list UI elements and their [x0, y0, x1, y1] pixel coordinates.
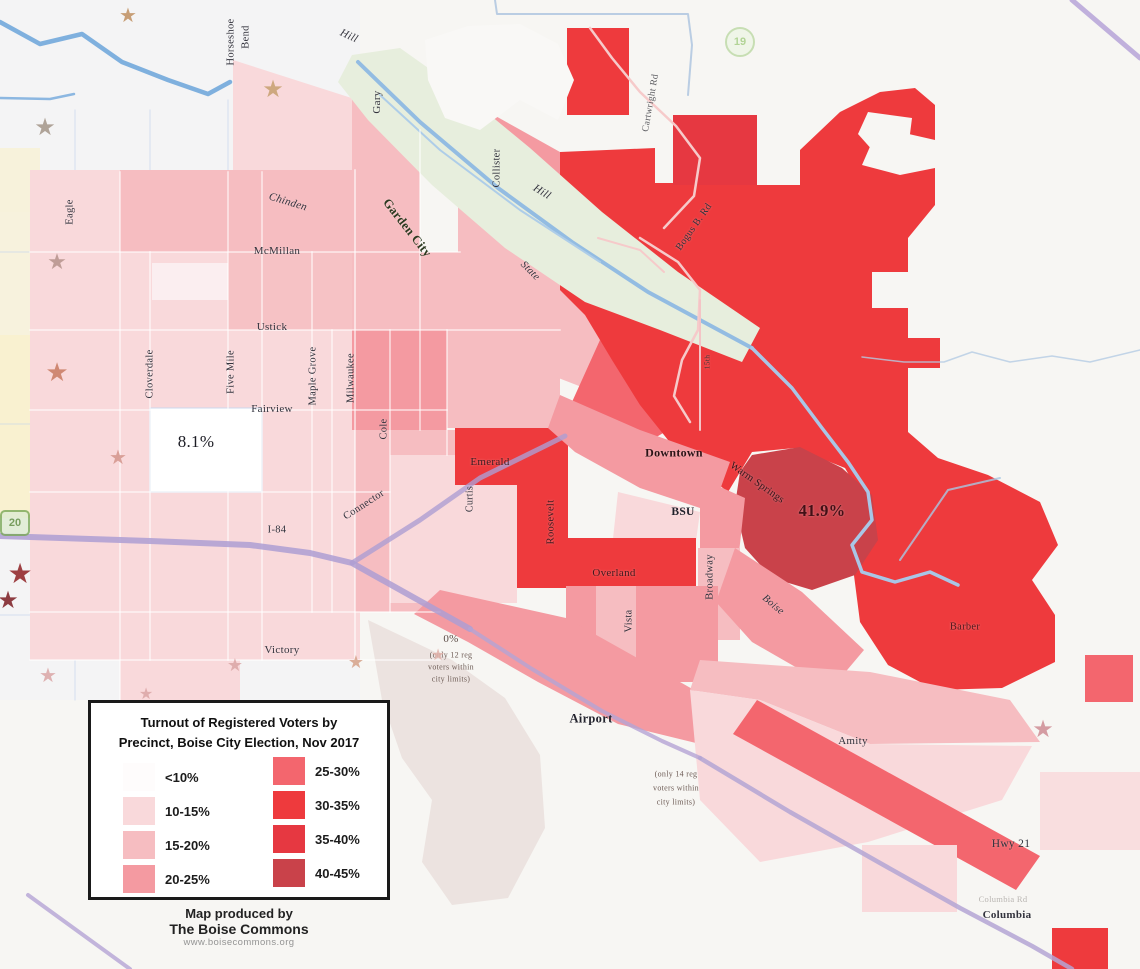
precinct-region	[1085, 655, 1133, 702]
legend-title: Turnout of Registered Voters by Precinct…	[91, 713, 387, 753]
legend-swatch-20-25	[123, 865, 155, 893]
precinct-region	[566, 538, 696, 586]
precinct-region	[352, 252, 460, 330]
precinct-region	[1040, 772, 1140, 850]
precinct-region	[517, 485, 568, 588]
legend-swatch-10	[123, 763, 155, 791]
precinct-region	[152, 263, 228, 300]
precinct-region	[673, 115, 757, 185]
credit-line2: The Boise Commons	[88, 921, 390, 937]
legend-row-left-3: 20-25%	[123, 865, 210, 893]
legend-label-15-20: 15-20%	[165, 838, 210, 853]
legend-label-30-35: 30-35%	[315, 798, 360, 813]
legend-row-left-1: 10-15%	[123, 797, 210, 825]
legend-label-10-15: 10-15%	[165, 804, 210, 819]
legend-row-left-2: 15-20%	[123, 831, 210, 859]
legend-label-10: <10%	[165, 770, 199, 785]
legend-title-line1: Turnout of Registered Voters by	[91, 713, 387, 733]
precinct-region	[567, 28, 629, 115]
precinct-region	[425, 24, 574, 130]
legend-label-40-45: 40-45%	[315, 866, 360, 881]
credit-line1: Map produced by	[88, 906, 390, 921]
precinct-region	[228, 252, 360, 330]
precinct-region	[150, 408, 262, 492]
legend-label-20-25: 20-25%	[165, 872, 210, 887]
legend-column-right: 25-30%30-35%35-40%40-45%	[273, 757, 360, 887]
legend-row-right-1: 30-35%	[273, 791, 360, 819]
legend-row-right-3: 40-45%	[273, 859, 360, 887]
map-legend: Turnout of Registered Voters by Precinct…	[88, 700, 390, 900]
legend-row-right-2: 35-40%	[273, 825, 360, 853]
legend-label-25-30: 25-30%	[315, 764, 360, 779]
map-credit: Map produced by The Boise Commons www.bo…	[88, 906, 390, 948]
legend-swatch-10-15	[123, 797, 155, 825]
legend-swatch-40-45	[273, 859, 305, 887]
legend-column-left: <10%10-15%15-20%20-25%	[123, 763, 210, 893]
legend-row-left-0: <10%	[123, 763, 210, 791]
precinct-region	[455, 428, 568, 485]
precinct-region	[352, 330, 447, 430]
precinct-region	[120, 170, 360, 252]
legend-row-right-0: 25-30%	[273, 757, 360, 785]
boise-turnout-map: HorseshoeBendHillGaryCollisterHillStateG…	[0, 0, 1140, 969]
legend-title-line2: Precinct, Boise City Election, Nov 2017	[91, 733, 387, 753]
credit-url: www.boisecommons.org	[88, 937, 390, 948]
map-line	[1072, 0, 1140, 58]
legend-label-35-40: 35-40%	[315, 832, 360, 847]
legend-swatch-35-40	[273, 825, 305, 853]
legend-swatch-30-35	[273, 791, 305, 819]
legend-swatch-15-20	[123, 831, 155, 859]
legend-swatch-25-30	[273, 757, 305, 785]
